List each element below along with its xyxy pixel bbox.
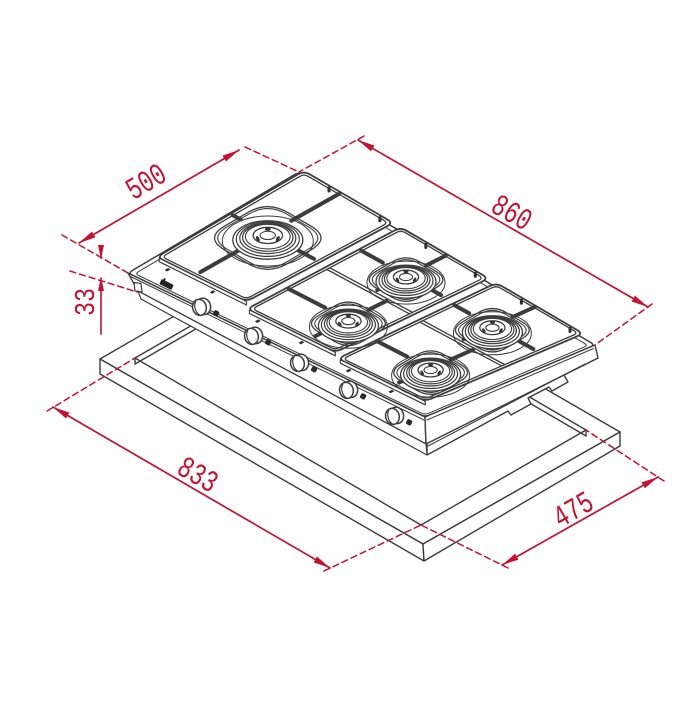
svg-text:33: 33 bbox=[70, 288, 103, 316]
